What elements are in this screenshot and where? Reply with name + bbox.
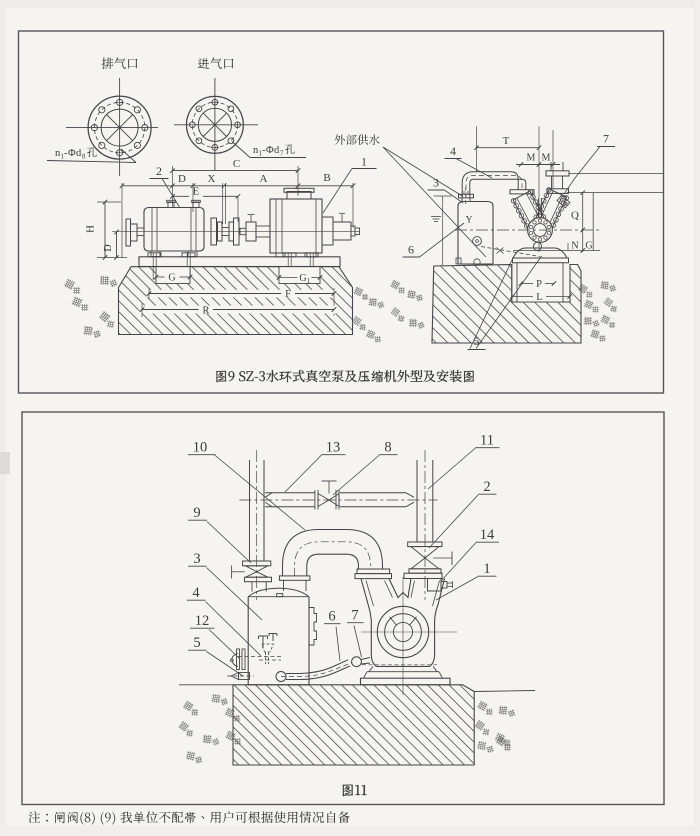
svg-text:D: D: [103, 244, 114, 251]
svg-text:3: 3: [433, 176, 439, 190]
svg-text:7: 7: [280, 150, 284, 158]
svg-text:D: D: [178, 173, 186, 185]
svg-text:2: 2: [483, 479, 490, 495]
svg-text:G: G: [585, 241, 592, 252]
svg-text:M: M: [527, 153, 536, 164]
svg-text:G: G: [168, 273, 175, 284]
svg-text:B: B: [323, 172, 330, 184]
svg-text:Φ: Φ: [266, 145, 274, 156]
svg-text:M: M: [542, 153, 551, 164]
svg-text:Φ: Φ: [68, 148, 76, 159]
svg-text:R: R: [202, 306, 209, 317]
svg-text:E: E: [193, 186, 200, 198]
svg-text:10: 10: [193, 440, 208, 456]
svg-text:4: 4: [192, 585, 200, 601]
svg-text:Y: Y: [466, 216, 473, 226]
svg-text:L: L: [536, 292, 542, 303]
svg-text:1: 1: [361, 155, 367, 169]
svg-text:A: A: [260, 173, 268, 185]
svg-text:12: 12: [195, 613, 210, 629]
svg-text:1: 1: [307, 277, 311, 285]
svg-text:N: N: [571, 241, 578, 252]
svg-text:C: C: [233, 158, 240, 170]
svg-text:P: P: [536, 279, 542, 290]
svg-text:1: 1: [483, 561, 490, 577]
svg-text:Q: Q: [571, 210, 579, 222]
svg-text:5: 5: [474, 334, 480, 348]
svg-text:14: 14: [480, 527, 495, 543]
svg-text:11: 11: [480, 433, 494, 449]
svg-text:G: G: [299, 273, 306, 284]
svg-text:3: 3: [193, 551, 200, 567]
svg-text:13: 13: [326, 440, 341, 456]
svg-text:8: 8: [82, 153, 86, 161]
svg-text:X: X: [208, 173, 216, 185]
svg-text:6: 6: [328, 609, 335, 625]
svg-text:8: 8: [384, 440, 391, 456]
svg-text:6: 6: [408, 243, 414, 257]
svg-text:H: H: [85, 225, 97, 233]
svg-text:9: 9: [193, 505, 200, 521]
svg-text:T: T: [503, 135, 510, 147]
svg-text:5: 5: [193, 635, 200, 651]
svg-text:2: 2: [156, 164, 162, 178]
svg-text:F: F: [285, 289, 291, 300]
svg-text:7: 7: [351, 608, 358, 624]
svg-text:4: 4: [450, 144, 456, 158]
svg-text:7: 7: [603, 132, 609, 146]
